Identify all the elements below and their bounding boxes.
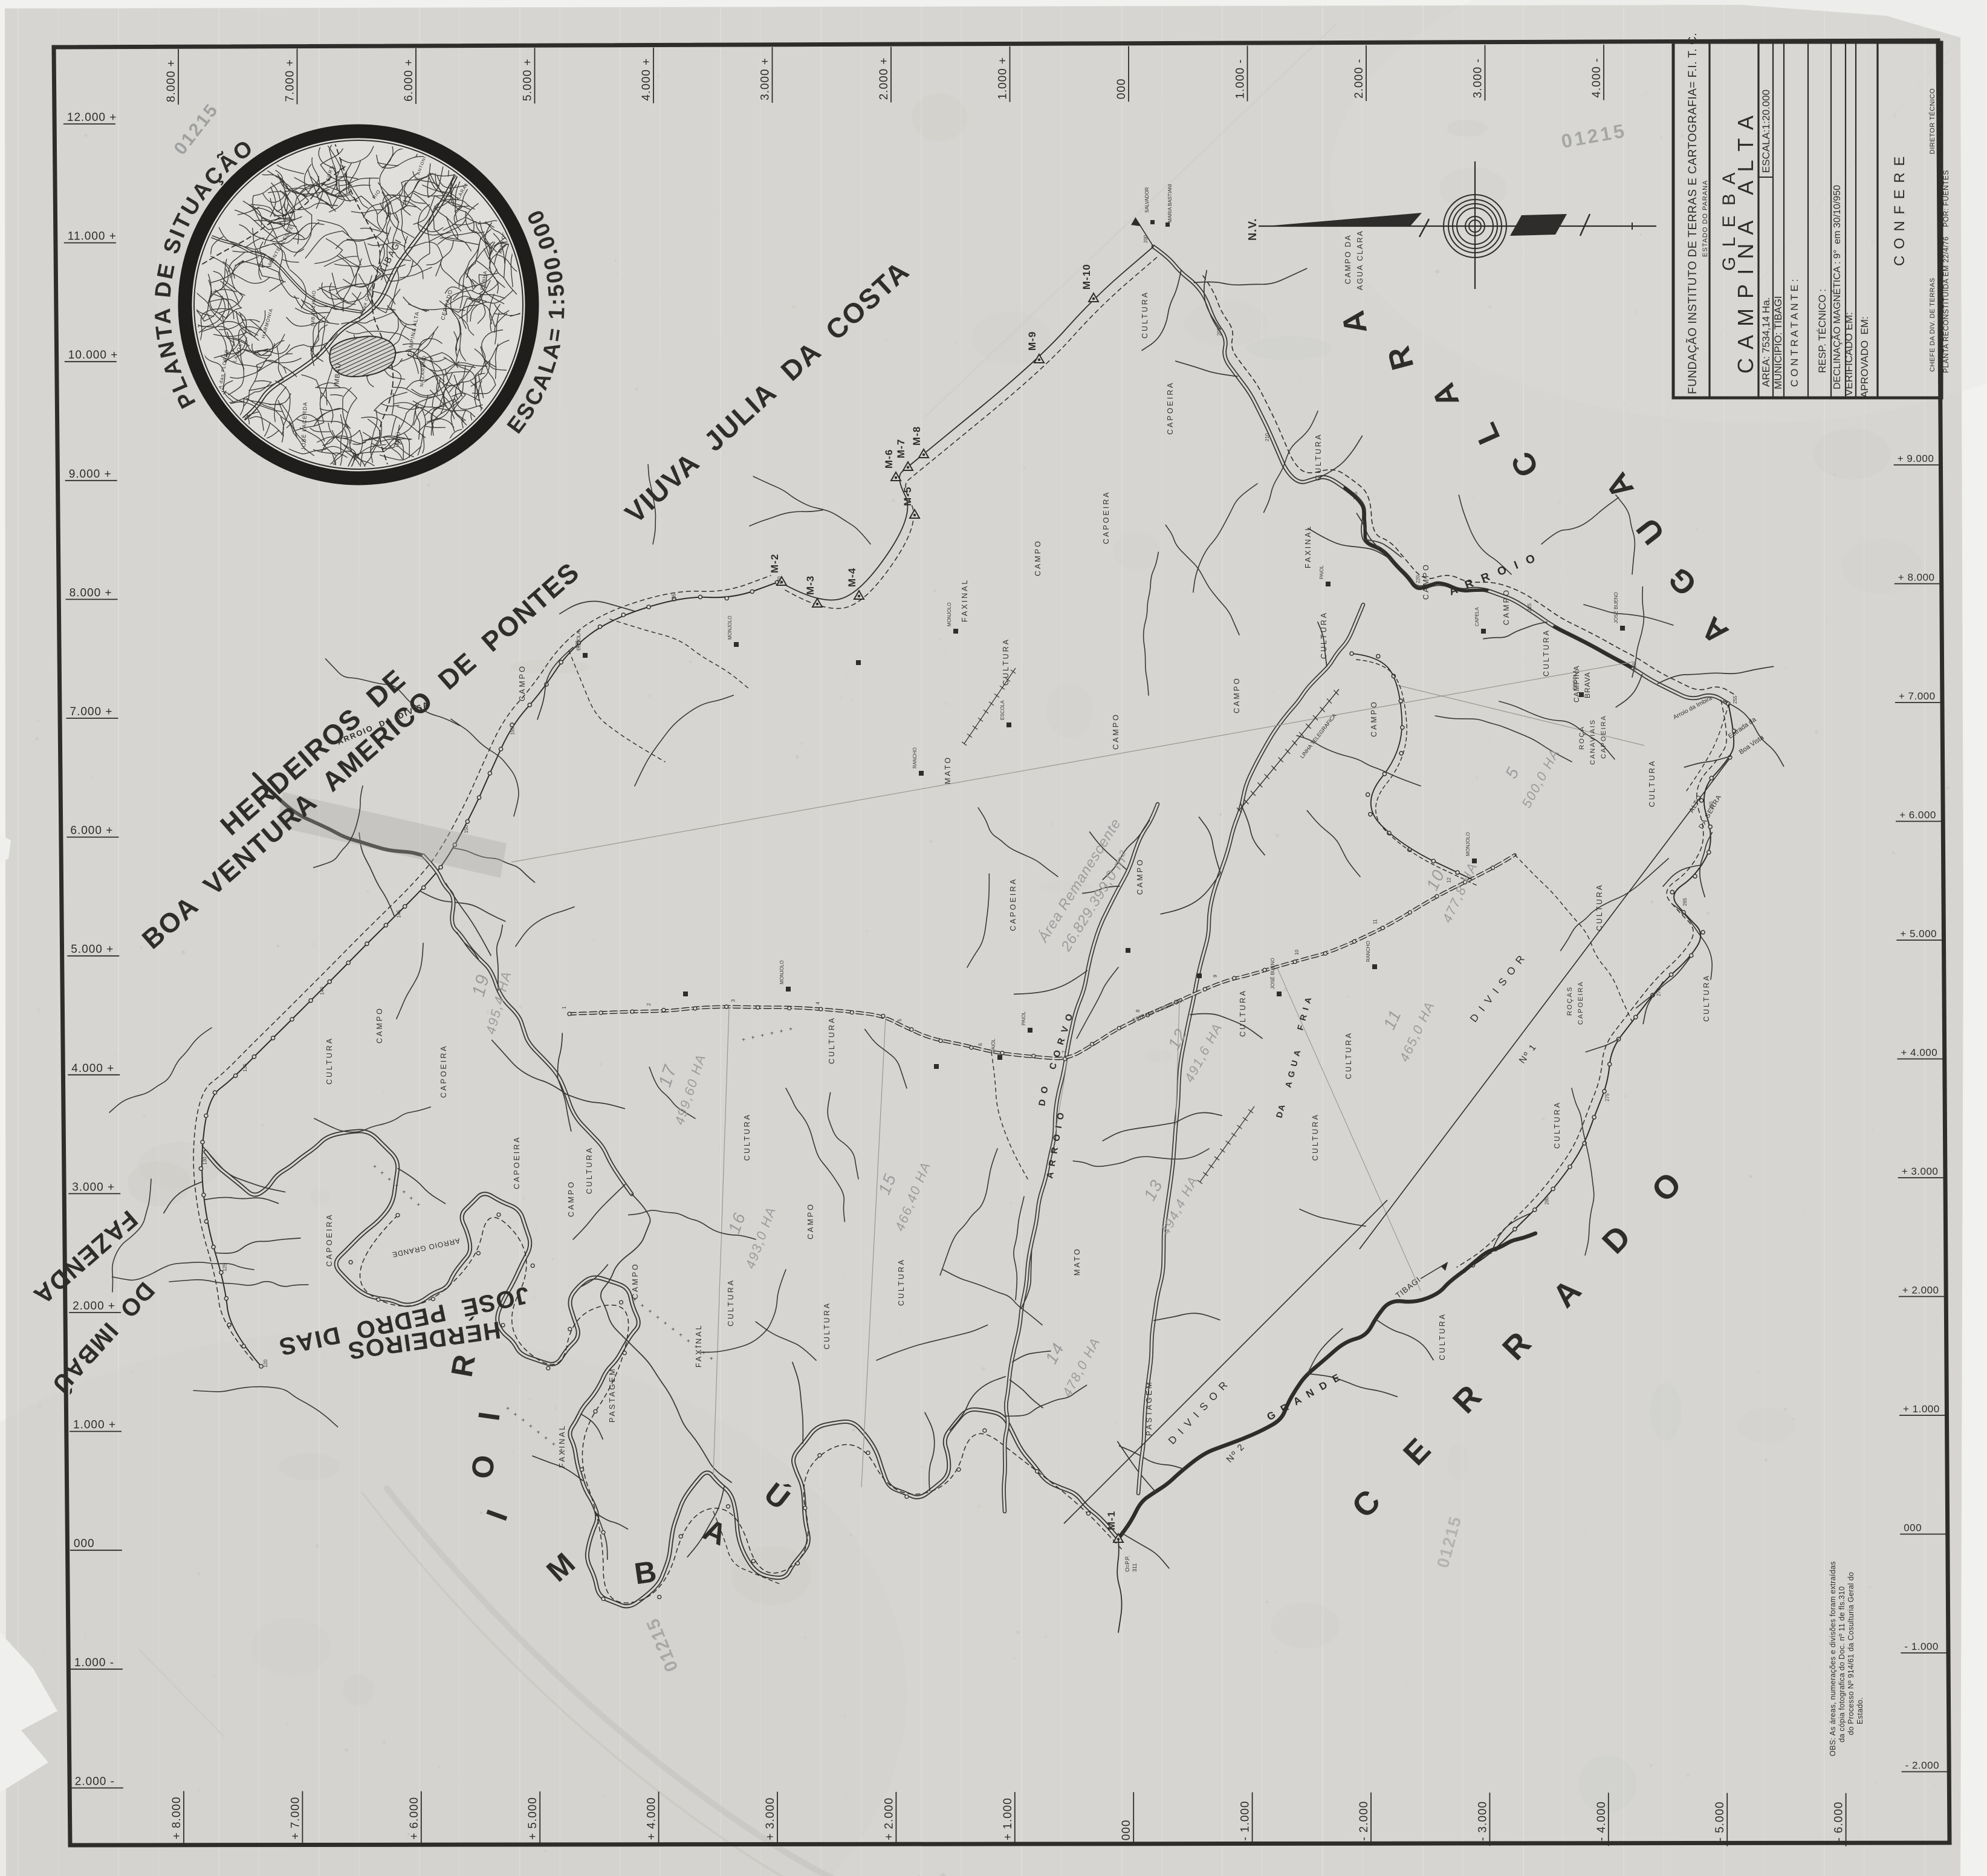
svg-text:3.000 +: 3.000 + bbox=[759, 57, 772, 100]
svg-text:+: + bbox=[521, 1418, 525, 1424]
svg-text:- 4.000: - 4.000 bbox=[1595, 1801, 1608, 1841]
svg-text:CULTURA: CULTURA bbox=[1311, 1113, 1320, 1161]
svg-text:CULTURA: CULTURA bbox=[1314, 433, 1323, 481]
svg-text:CANAVIAIS: CANAVIAIS bbox=[1589, 719, 1596, 765]
svg-text:BRAVA: BRAVA bbox=[1583, 672, 1592, 698]
svg-text:CULTURA: CULTURA bbox=[743, 1113, 751, 1161]
svg-text:CAPOEIRA: CAPOEIRA bbox=[1166, 381, 1175, 435]
svg-text:+: + bbox=[380, 1170, 384, 1177]
svg-text:2.000 +: 2.000 + bbox=[73, 1300, 115, 1313]
svg-text:+ 5.000: + 5.000 bbox=[1900, 928, 1937, 940]
svg-text:+ 8.000: + 8.000 bbox=[170, 1796, 183, 1839]
svg-text:4.000 +: 4.000 + bbox=[640, 58, 653, 101]
svg-text:M-1: M-1 bbox=[1106, 1511, 1117, 1530]
svg-text:O=P.P.: O=P.P. bbox=[1124, 1556, 1130, 1572]
svg-text:C O N F E R E: C O N F E R E bbox=[1891, 155, 1908, 266]
svg-text:+: + bbox=[780, 1028, 783, 1035]
svg-text:+ 6.000: + 6.000 bbox=[1899, 810, 1936, 821]
svg-text:M-2: M-2 bbox=[769, 554, 780, 573]
svg-text:CAMPO: CAMPO bbox=[1136, 858, 1144, 895]
svg-text:265: 265 bbox=[1682, 898, 1688, 906]
svg-text:CAMPO: CAMPO bbox=[806, 1203, 815, 1239]
svg-text:PLANTA RECONSTITUIDA EM 22/4/7: PLANTA RECONSTITUIDA EM 22/4/76 POR: FUE… bbox=[1942, 170, 1950, 373]
svg-text:3.000 +: 3.000 + bbox=[72, 1181, 115, 1193]
svg-text:+: + bbox=[664, 1320, 667, 1327]
svg-text:JOSÉ BUENO: JOSÉ BUENO bbox=[1613, 592, 1619, 623]
svg-text:+: + bbox=[656, 1314, 660, 1321]
svg-text:+: + bbox=[402, 1189, 406, 1196]
svg-text:FAXINAL: FAXINAL bbox=[1304, 525, 1312, 568]
svg-text:+: + bbox=[417, 1202, 420, 1209]
svg-text:CAPELA: CAPELA bbox=[1474, 607, 1480, 626]
svg-text:155: 155 bbox=[510, 727, 515, 735]
svg-text:PAIOL: PAIOL bbox=[991, 1038, 996, 1053]
svg-text:+ 3.000: + 3.000 bbox=[764, 1797, 777, 1840]
svg-text:5.000 +: 5.000 + bbox=[522, 58, 534, 101]
svg-text:MUNICIPIO: TIBAGI: MUNICIPIO: TIBAGI bbox=[1772, 296, 1784, 389]
svg-text:1.000 +: 1.000 + bbox=[73, 1419, 116, 1432]
svg-text:2.000 -: 2.000 - bbox=[75, 1775, 115, 1788]
svg-text:CULTURA: CULTURA bbox=[1141, 291, 1149, 339]
svg-text:+ 7.000: + 7.000 bbox=[1899, 690, 1936, 702]
svg-text:DIRETOR TÉCNICO: DIRETOR TÉCNICO bbox=[1928, 88, 1936, 154]
svg-text:000: 000 bbox=[74, 1537, 95, 1550]
svg-text:CAPOEIRA: CAPOEIRA bbox=[325, 1213, 334, 1267]
svg-text:10.000 +: 10.000 + bbox=[68, 349, 118, 362]
svg-text:CAPOEIRA: CAPOEIRA bbox=[1102, 490, 1110, 544]
svg-text:145: 145 bbox=[397, 909, 402, 918]
svg-text:+: + bbox=[409, 1196, 413, 1203]
svg-text:6.000 +: 6.000 + bbox=[70, 825, 113, 837]
svg-text:CAMPINA: CAMPINA bbox=[1572, 665, 1581, 703]
svg-text:+: + bbox=[387, 1177, 391, 1183]
svg-text:215: 215 bbox=[1353, 492, 1358, 500]
svg-text:CULTURA: CULTURA bbox=[1320, 611, 1328, 659]
svg-text:M-4: M-4 bbox=[846, 568, 858, 587]
svg-text:+: + bbox=[671, 1326, 675, 1333]
svg-text:+: + bbox=[710, 1356, 713, 1363]
svg-text:CULTURA: CULTURA bbox=[1344, 1031, 1353, 1079]
svg-text:M-5: M-5 bbox=[902, 487, 913, 506]
svg-text:MONJOLO: MONJOLO bbox=[947, 602, 952, 626]
svg-text:280: 280 bbox=[1544, 1196, 1549, 1205]
svg-text:150: 150 bbox=[464, 825, 469, 833]
svg-text:8.000 +: 8.000 + bbox=[70, 586, 112, 599]
svg-text:+: + bbox=[514, 1412, 517, 1418]
svg-text:6: 6 bbox=[977, 1043, 983, 1046]
svg-text:+ 5.000: + 5.000 bbox=[527, 1797, 539, 1840]
svg-text:170: 170 bbox=[777, 576, 782, 585]
svg-text:1.000 +: 1.000 + bbox=[997, 57, 1010, 100]
svg-text:M-3: M-3 bbox=[805, 576, 816, 595]
svg-text:+ 1.000: + 1.000 bbox=[1002, 1797, 1014, 1840]
svg-text:1.000 -: 1.000 - bbox=[74, 1657, 114, 1669]
svg-text:CULTURA: CULTURA bbox=[1542, 629, 1551, 677]
svg-text:SALVADOR: SALVADOR bbox=[1144, 187, 1150, 213]
svg-text:OBS: As áreas, numerações e d: OBS: As áreas, numerações e divisões for… bbox=[1829, 1561, 1837, 1756]
svg-text:+ 3.000: + 3.000 bbox=[1902, 1166, 1939, 1177]
svg-text:CAMPO: CAMPO bbox=[1233, 677, 1241, 713]
svg-text:+: + bbox=[395, 1183, 398, 1190]
svg-text:CULTURA: CULTURA bbox=[1002, 638, 1010, 686]
svg-text:MATO: MATO bbox=[944, 756, 952, 784]
svg-text:+: + bbox=[742, 1037, 745, 1043]
svg-text:+: + bbox=[687, 1338, 690, 1345]
svg-text:160: 160 bbox=[575, 640, 580, 649]
svg-text:CAPOEIRA: CAPOEIRA bbox=[1009, 877, 1017, 931]
svg-text:205: 205 bbox=[1217, 327, 1222, 336]
svg-text:CULTURA: CULTURA bbox=[727, 1279, 735, 1326]
svg-text:CULTURA: CULTURA bbox=[1239, 989, 1247, 1037]
svg-text:255: 255 bbox=[1733, 695, 1738, 704]
svg-text:CAMPO: CAMPO bbox=[375, 1007, 384, 1043]
svg-text:+ 2.000: + 2.000 bbox=[1902, 1285, 1939, 1296]
svg-text:FUNDAÇÃO INSTITUTO DE TERRAS E: FUNDAÇÃO INSTITUTO DE TERRAS E CARTOGRAF… bbox=[1686, 33, 1699, 394]
svg-text:140: 140 bbox=[319, 987, 325, 995]
svg-text:+ 4.000: + 4.000 bbox=[1901, 1047, 1938, 1059]
svg-text:RANCHO: RANCHO bbox=[1366, 941, 1371, 962]
svg-text:CHEFE DA DIV. DE TERRAS: CHEFE DA DIV. DE TERRAS bbox=[1929, 278, 1936, 372]
svg-text:CULTURA: CULTURA bbox=[325, 1037, 334, 1085]
svg-text:CAMPO: CAMPO bbox=[518, 664, 527, 701]
svg-text:- 5.000: - 5.000 bbox=[1714, 1801, 1726, 1841]
svg-text:6.000 +: 6.000 + bbox=[403, 59, 415, 102]
svg-text:210: 210 bbox=[1265, 433, 1270, 441]
svg-text:CULTURA: CULTURA bbox=[1595, 883, 1604, 931]
svg-text:+ 9.000: + 9.000 bbox=[1898, 453, 1934, 464]
svg-text:C A M P I N A A L T A: C A M P I N A A L T A bbox=[1733, 114, 1758, 374]
svg-text:CAPOEIRA: CAPOEIRA bbox=[1600, 715, 1607, 759]
svg-text:1: 1 bbox=[562, 1006, 567, 1009]
svg-text:N.V.: N.V. bbox=[1246, 218, 1259, 241]
svg-text:CULTURA: CULTURA bbox=[897, 1258, 906, 1306]
svg-text:CAMPO: CAMPO bbox=[1502, 588, 1511, 625]
svg-text:11: 11 bbox=[1373, 919, 1378, 924]
svg-text:125: 125 bbox=[222, 1263, 228, 1271]
svg-text:FAXINAL: FAXINAL bbox=[961, 579, 969, 622]
svg-text:220: 220 bbox=[1415, 575, 1421, 583]
svg-text:2.000 -: 2.000 - bbox=[1353, 59, 1366, 99]
svg-text:2: 2 bbox=[646, 1003, 652, 1006]
svg-text:275: 275 bbox=[1604, 1093, 1610, 1102]
svg-text:- 3.000: - 3.000 bbox=[1476, 1801, 1489, 1841]
svg-text:M-8: M-8 bbox=[911, 426, 922, 446]
svg-text:CULTURA: CULTURA bbox=[1648, 759, 1656, 807]
svg-text:12.000 +: 12.000 + bbox=[67, 111, 117, 124]
svg-text:+: + bbox=[529, 1424, 533, 1430]
svg-text:311: 311 bbox=[1132, 1563, 1138, 1572]
svg-text:MONJOLO: MONJOLO bbox=[1465, 832, 1471, 856]
svg-text:CULTURA: CULTURA bbox=[1702, 974, 1711, 1022]
svg-text:da cópia fotografica do D: da cópia fotografica do Doc. nº 11 de fl… bbox=[1838, 1586, 1846, 1742]
svg-text:ESTADO DO PARANA: ESTADO DO PARANA bbox=[1702, 180, 1709, 257]
svg-text:120: 120 bbox=[263, 1359, 268, 1368]
svg-text:CULTURA: CULTURA bbox=[823, 1302, 831, 1349]
svg-text:165: 165 bbox=[672, 593, 677, 602]
svg-text:4.000 -: 4.000 - bbox=[1590, 58, 1603, 98]
svg-text:8: 8 bbox=[1135, 1009, 1141, 1012]
svg-text:MONJOLO: MONJOLO bbox=[779, 960, 785, 984]
svg-text:RESP. TÉCNICO :: RESP. TÉCNICO : bbox=[1817, 289, 1828, 373]
svg-text:Estado.: Estado. bbox=[1856, 1698, 1864, 1725]
svg-text:+ 1.000: + 1.000 bbox=[1903, 1403, 1940, 1415]
svg-text:AGUA CLARA: AGUA CLARA bbox=[1356, 230, 1364, 290]
svg-text:C O N T R A T A N T E :: C O N T R A T A N T E : bbox=[1789, 279, 1800, 387]
svg-text:- 6.000: - 6.000 bbox=[1833, 1802, 1846, 1842]
svg-text:11.000 +: 11.000 + bbox=[68, 230, 117, 243]
svg-text:+: + bbox=[506, 1406, 510, 1412]
svg-text:DECLINAÇÃO MAGNÉTICA : 9° em: DECLINAÇÃO MAGNÉTICA : 9° em 30/10/950 bbox=[1830, 185, 1843, 389]
svg-text:3: 3 bbox=[731, 999, 736, 1002]
svg-text:+: + bbox=[789, 1027, 793, 1033]
svg-text:9.000 +: 9.000 + bbox=[69, 468, 112, 481]
svg-text:225: 225 bbox=[1527, 603, 1532, 611]
svg-text:+: + bbox=[760, 1033, 764, 1039]
svg-text:7.000 +: 7.000 + bbox=[284, 59, 297, 102]
svg-text:+: + bbox=[770, 1031, 774, 1037]
svg-text:000: 000 bbox=[1115, 78, 1128, 99]
svg-text:MONJOLO: MONJOLO bbox=[727, 615, 733, 640]
svg-text:+: + bbox=[537, 1429, 540, 1436]
svg-text:JOSÉ BUENO: JOSÉ BUENO bbox=[1270, 958, 1276, 989]
svg-text:+ 4.000: + 4.000 bbox=[646, 1797, 658, 1840]
svg-text:CAPOEIRA: CAPOEIRA bbox=[513, 1135, 521, 1189]
svg-text:MATO: MATO bbox=[1073, 1247, 1081, 1276]
svg-text:1.000 -: 1.000 - bbox=[1234, 59, 1247, 99]
svg-text:O: O bbox=[465, 1453, 501, 1481]
svg-text:CULTURA: CULTURA bbox=[828, 1016, 836, 1064]
svg-text:do Processo Nº 914/61 da C: do Processo Nº 914/61 da Cosulturia Gera… bbox=[1847, 1572, 1855, 1735]
svg-text:200: 200 bbox=[1143, 235, 1149, 243]
svg-text:10: 10 bbox=[1294, 949, 1300, 955]
svg-text:CULTURA: CULTURA bbox=[1438, 1313, 1447, 1360]
svg-text:+ 8.000: + 8.000 bbox=[1898, 572, 1935, 583]
svg-text:7: 7 bbox=[1062, 1050, 1067, 1053]
svg-text:+ 2.000: + 2.000 bbox=[883, 1797, 895, 1840]
svg-text:PASTAGEM: PASTAGEM bbox=[608, 1367, 617, 1423]
svg-text:+: + bbox=[679, 1332, 682, 1339]
svg-text:APROVADO EM:: APROVADO EM: bbox=[1859, 316, 1870, 398]
svg-text:4.000 +: 4.000 + bbox=[71, 1062, 114, 1075]
svg-text:M-10: M-10 bbox=[1081, 264, 1092, 290]
svg-text:ESCOLA: ESCOLA bbox=[1000, 700, 1005, 720]
svg-text:CAMPO: CAMPO bbox=[631, 1262, 640, 1299]
svg-text:135: 135 bbox=[242, 1063, 248, 1072]
svg-text:7.000 +: 7.000 + bbox=[70, 706, 113, 718]
svg-text:ROÇA: ROÇA bbox=[1578, 725, 1586, 750]
svg-text:ROÇAS: ROÇAS bbox=[1566, 986, 1574, 1016]
svg-text:12: 12 bbox=[1447, 877, 1452, 883]
svg-text:260: 260 bbox=[1709, 801, 1714, 810]
svg-text:130: 130 bbox=[203, 1157, 208, 1165]
svg-text:+ 6.000: + 6.000 bbox=[408, 1797, 421, 1840]
svg-text:M-9: M-9 bbox=[1026, 331, 1038, 351]
svg-text:CAMPO: CAMPO bbox=[567, 1180, 575, 1217]
svg-text:ESCALA:1:20.000: ESCALA:1:20.000 bbox=[1760, 89, 1772, 173]
svg-text:CAMPO: CAMPO bbox=[1422, 563, 1430, 600]
svg-text:PASTAGEM: PASTAGEM bbox=[1145, 1380, 1153, 1436]
svg-text:CAMPO DA: CAMPO DA bbox=[1344, 234, 1352, 284]
svg-text:PAIOL: PAIOL bbox=[1021, 1011, 1026, 1025]
svg-text:CAMPO: CAMPO bbox=[1034, 539, 1042, 576]
svg-text:B: B bbox=[632, 1554, 659, 1591]
svg-text:CAPOEIRA: CAPOEIRA bbox=[439, 1044, 448, 1098]
svg-text:RANCHO: RANCHO bbox=[912, 747, 918, 768]
svg-text:CAMPO: CAMPO bbox=[1112, 713, 1120, 750]
svg-text:CAMPO: CAMPO bbox=[1370, 700, 1378, 737]
svg-text:230: 230 bbox=[1632, 663, 1638, 671]
svg-text:+: + bbox=[544, 1435, 548, 1442]
svg-text:000: 000 bbox=[1904, 1522, 1922, 1534]
svg-text:+: + bbox=[373, 1164, 377, 1170]
svg-text:+: + bbox=[751, 1035, 755, 1042]
svg-text:000: 000 bbox=[1120, 1820, 1133, 1841]
svg-text:- 1.000: - 1.000 bbox=[1239, 1800, 1252, 1840]
svg-text:M-6: M-6 bbox=[883, 449, 895, 469]
svg-text:FAXINAL: FAXINAL bbox=[695, 1324, 703, 1368]
svg-text:FAXINAL: FAXINAL bbox=[558, 1424, 566, 1468]
svg-text:270: 270 bbox=[1656, 988, 1662, 996]
svg-text:CULTURA: CULTURA bbox=[1553, 1101, 1561, 1149]
svg-text:3.000 -: 3.000 - bbox=[1472, 58, 1485, 98]
svg-text:9: 9 bbox=[1213, 975, 1218, 978]
svg-text:4: 4 bbox=[815, 1002, 821, 1005]
svg-text:CAPOEIRA: CAPOEIRA bbox=[1577, 981, 1584, 1025]
svg-text:PAIOL: PAIOL bbox=[1319, 565, 1324, 579]
svg-text:- 2.000: - 2.000 bbox=[1358, 1801, 1370, 1841]
svg-text:M-7: M-7 bbox=[895, 439, 907, 458]
svg-text:+: + bbox=[552, 1441, 556, 1448]
svg-text:5: 5 bbox=[897, 1019, 903, 1022]
svg-text:2.000 +: 2.000 + bbox=[878, 57, 890, 100]
svg-text:VERIFICADO EM:: VERIFICADO EM: bbox=[1843, 312, 1855, 396]
svg-text:+: + bbox=[641, 1303, 644, 1310]
svg-text:+ 7.000: + 7.000 bbox=[289, 1797, 302, 1840]
svg-text:AREA: 7534,14 Ha.: AREA: 7534,14 Ha. bbox=[1760, 297, 1772, 387]
svg-text:5.000 +: 5.000 + bbox=[71, 943, 114, 956]
svg-text:- 2.000: - 2.000 bbox=[1905, 1760, 1939, 1771]
svg-text:CULTURA: CULTURA bbox=[585, 1146, 594, 1194]
svg-text:8.000 +: 8.000 + bbox=[165, 59, 178, 102]
svg-text:- 1.000: - 1.000 bbox=[1904, 1641, 1938, 1652]
svg-text:MARIA BASTIANI: MARIA BASTIANI bbox=[1167, 184, 1173, 222]
svg-text:+: + bbox=[648, 1309, 652, 1316]
